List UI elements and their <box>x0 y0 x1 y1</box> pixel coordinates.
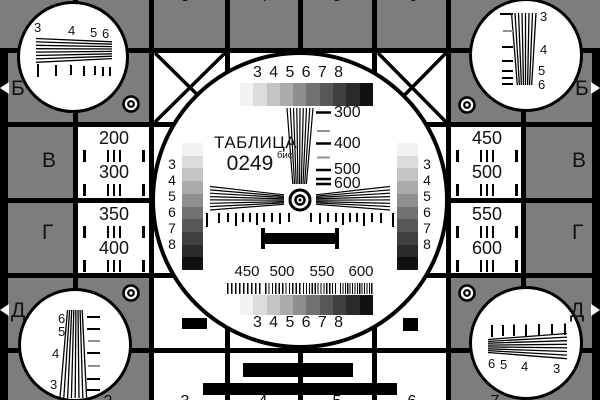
corner-br-label: 4 <box>521 359 528 374</box>
corner-dashes-top-right <box>500 14 513 84</box>
center-bullseye-icon <box>290 190 310 210</box>
center-horizontal-wedge-left <box>210 187 284 211</box>
corner-br-label: 5 <box>500 357 507 372</box>
scale-label: 7 <box>165 220 179 236</box>
scale-label: 8 <box>334 64 343 82</box>
corner-tl-label: 5 <box>90 25 97 40</box>
scale-label: 4 <box>269 64 278 82</box>
burst-mark-500: 500 <box>267 263 297 280</box>
row-letter-left-b: Б <box>11 77 25 101</box>
scale-label: 8 <box>420 236 434 252</box>
cell-value-450: 450 <box>452 128 522 149</box>
cell-value-200: 200 <box>79 128 149 149</box>
scale-label: 3 <box>165 156 179 172</box>
scale-label: 3 <box>253 314 262 332</box>
corner-tl-label: 4 <box>68 23 75 38</box>
corner-dashes-bottom-left <box>87 317 100 390</box>
corner-bl-label: 3 <box>50 377 57 392</box>
burst-mark-450: 450 <box>232 263 262 280</box>
cell-value-600: 600 <box>452 238 522 259</box>
cell-value-300: 300 <box>79 162 149 183</box>
cell-value-350: 350 <box>79 204 149 225</box>
scale-label: 7 <box>318 314 327 332</box>
row-letter-right-d: Д <box>570 299 584 323</box>
row-letter-left-d: Д <box>11 299 25 323</box>
scale-label: 5 <box>420 188 434 204</box>
center-tick-row <box>207 213 393 227</box>
scale-label: 3 <box>253 64 262 82</box>
scale-label: 7 <box>420 220 434 236</box>
wedge-mark-600: 600 <box>334 175 361 193</box>
cell-ticks <box>452 260 522 272</box>
wedge-mark-dashes <box>316 113 331 185</box>
cell-ticks <box>79 226 149 238</box>
cell-value-500: 500 <box>452 162 522 183</box>
bottom-scale-labels: 345678 <box>253 314 343 332</box>
left-scale-labels: 345678 <box>165 156 179 244</box>
scale-label: 3 <box>420 156 434 172</box>
cell-ticks <box>79 260 149 272</box>
corner-ticks-top-left <box>38 64 110 77</box>
corner-tr-label: 3 <box>540 9 547 24</box>
scale-label: 4 <box>269 314 278 332</box>
wedge-mark-400: 400 <box>334 135 361 153</box>
top-scale-labels: 345678 <box>253 64 343 82</box>
wedge-mark-300: 300 <box>334 104 361 122</box>
scale-label: 5 <box>165 188 179 204</box>
corner-br-label: 3 <box>553 361 560 376</box>
scale-label: 4 <box>165 172 179 188</box>
cell-value-400: 400 <box>79 238 149 259</box>
corner-tr-label: 4 <box>540 42 547 57</box>
pattern-lines-layer <box>0 0 600 400</box>
scale-label: 5 <box>285 64 294 82</box>
corner-br-label: 6 <box>488 356 495 371</box>
burst-mark-600: 600 <box>346 263 376 280</box>
corner-bl-label: 4 <box>52 346 59 361</box>
corner-tr-label: 6 <box>538 77 545 92</box>
corner-wedge-top-right <box>512 13 537 85</box>
row-letter-right-b: Б <box>575 77 589 101</box>
scale-label: 8 <box>165 236 179 252</box>
corner-tl-label: 3 <box>34 20 41 35</box>
cell-ticks <box>452 226 522 238</box>
cell-ticks <box>452 184 522 196</box>
cell-value-550: 550 <box>452 204 522 225</box>
scale-label: 5 <box>285 314 294 332</box>
corner-wedge-top-left <box>36 39 112 63</box>
right-scale-labels: 345678 <box>420 156 434 244</box>
row-letter-right-g: Г <box>572 221 583 245</box>
row-letter-left-g: Г <box>42 221 53 245</box>
cell-ticks <box>79 184 149 196</box>
row-letter-right-v: В <box>572 149 586 173</box>
corner-tr-label: 5 <box>538 63 545 78</box>
test-card: 3 4 5 6 2 3 4 5 6 7 <box>0 0 600 400</box>
cell-ticks <box>452 150 522 162</box>
scale-label: 7 <box>318 64 327 82</box>
cell-ticks <box>79 150 149 162</box>
row-letter-left-v: В <box>42 149 56 173</box>
scale-label: 8 <box>334 314 343 332</box>
scale-label: 6 <box>302 314 311 332</box>
card-title-number: 0249 <box>222 152 278 176</box>
scale-label: 6 <box>302 64 311 82</box>
scale-label: 4 <box>420 172 434 188</box>
burst-mark-550: 550 <box>307 263 337 280</box>
corner-bl-label: 5 <box>58 324 65 339</box>
corner-wedge-bottom-right <box>488 334 567 359</box>
scale-label: 6 <box>420 204 434 220</box>
scale-label: 6 <box>165 204 179 220</box>
card-title-suffix: бис <box>277 150 293 161</box>
corner-tl-label: 6 <box>102 26 109 41</box>
